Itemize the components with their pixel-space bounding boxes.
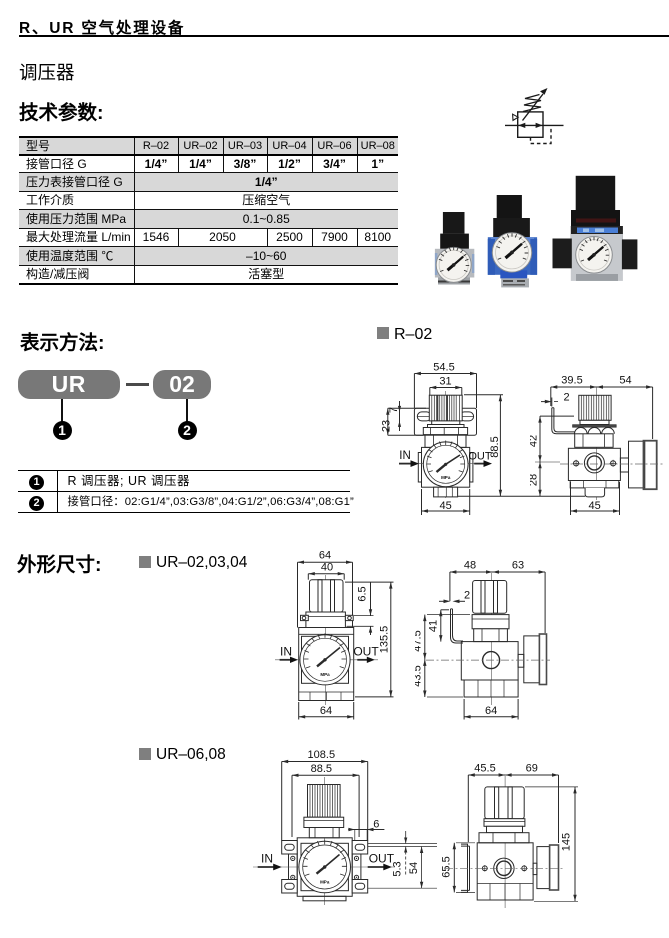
svg-text:145: 145	[561, 833, 573, 851]
svg-text:64: 64	[320, 705, 332, 717]
svg-text:42: 42	[530, 435, 540, 447]
svg-text:23: 23	[381, 420, 393, 432]
svg-text:64: 64	[485, 705, 497, 717]
svg-text:MPa: MPa	[441, 475, 451, 480]
svg-text:63: 63	[512, 560, 524, 572]
svg-text:39.5: 39.5	[561, 375, 582, 387]
svg-text:28: 28	[530, 474, 540, 486]
svg-text:OUT: OUT	[353, 645, 379, 659]
svg-text:88.5: 88.5	[489, 436, 501, 457]
svg-text:MPa: MPa	[320, 672, 330, 677]
svg-text:43.5: 43.5	[415, 665, 424, 686]
svg-text:MPa: MPa	[320, 880, 330, 885]
svg-text:IN: IN	[261, 852, 273, 866]
svg-text:45: 45	[588, 500, 600, 512]
svg-text:45: 45	[439, 500, 451, 512]
svg-text:2: 2	[464, 590, 470, 602]
svg-text:64: 64	[319, 550, 331, 562]
svg-text:45.5: 45.5	[474, 763, 495, 775]
svg-text:IN: IN	[399, 450, 411, 462]
svg-text:6.5: 6.5	[357, 586, 369, 601]
svg-text:7: 7	[388, 407, 400, 413]
svg-text:6: 6	[373, 819, 379, 831]
svg-text:135.5: 135.5	[379, 626, 391, 654]
svg-text:48: 48	[464, 560, 476, 572]
svg-text:31: 31	[439, 376, 451, 388]
svg-text:5.3: 5.3	[392, 861, 404, 876]
svg-text:IN: IN	[280, 645, 292, 659]
svg-text:108.5: 108.5	[308, 749, 336, 761]
svg-text:88.5: 88.5	[311, 763, 332, 775]
svg-text:2: 2	[563, 392, 569, 404]
svg-text:54.5: 54.5	[433, 362, 454, 374]
svg-text:41: 41	[428, 620, 440, 632]
svg-text:54: 54	[619, 375, 631, 387]
svg-text:65.5: 65.5	[441, 856, 453, 877]
svg-text:69: 69	[526, 763, 538, 775]
svg-text:40: 40	[321, 562, 333, 574]
svg-text:47.5: 47.5	[415, 630, 424, 651]
